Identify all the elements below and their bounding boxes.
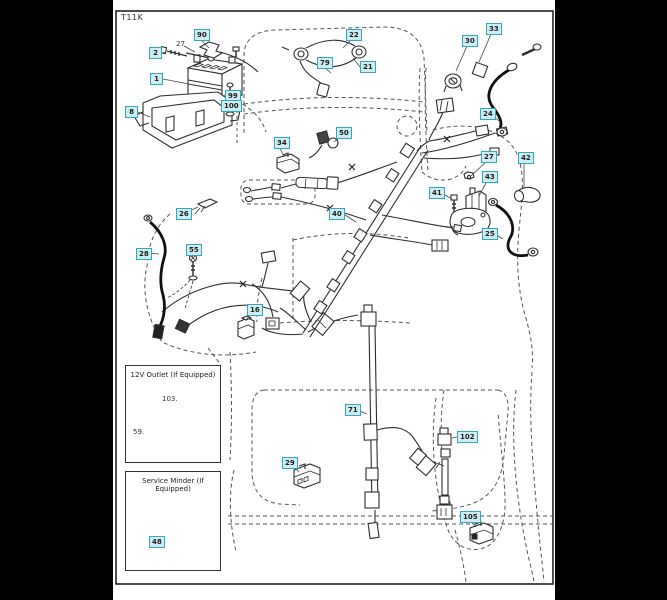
callout-34: 34 <box>274 137 290 149</box>
label-27: 27 <box>176 40 185 48</box>
callout-24: 24 <box>480 108 496 120</box>
callout-50: 50 <box>336 127 352 139</box>
inset-service-minder-title: Service Minder (If Equipped) <box>126 477 220 493</box>
callout-21: 21 <box>360 61 376 73</box>
callout-26: 26 <box>176 208 192 220</box>
callout-8: 8 <box>125 106 138 118</box>
label-59: 59. <box>133 428 144 436</box>
callout-102: 102 <box>457 431 478 443</box>
callout-40: 40 <box>329 208 345 220</box>
inset-12v-outlet: 12V Outlet (If Equipped) <box>125 365 221 463</box>
callout-29: 29 <box>282 457 298 469</box>
callout-55: 55 <box>186 244 202 256</box>
parts-diagram: 12V Outlet (If Equipped) Service Minder … <box>0 0 667 600</box>
callout-33: 33 <box>486 23 502 35</box>
callout-105: 105 <box>460 511 481 523</box>
label-103: 103. <box>162 395 178 403</box>
callout-100: 100 <box>221 100 242 112</box>
callout-2: 2 <box>149 47 162 59</box>
callout-43: 43 <box>482 171 498 183</box>
callout-25: 25 <box>482 228 498 240</box>
callout-41: 41 <box>429 187 445 199</box>
callout-42: 42 <box>518 152 534 164</box>
inset-12v-outlet-title: 12V Outlet (If Equipped) <box>126 371 220 379</box>
callout-30: 30 <box>462 35 478 47</box>
callout-71: 71 <box>345 404 361 416</box>
callout-28: 28 <box>136 248 152 260</box>
callout-1: 1 <box>150 73 163 85</box>
diagram-code: T11K <box>121 13 143 22</box>
callout-16: 16 <box>247 304 263 316</box>
callout-27: 27 <box>481 151 497 163</box>
callout-79: 79 <box>317 57 333 69</box>
callout-48: 48 <box>149 536 165 548</box>
callout-90: 90 <box>194 29 210 41</box>
inset-service-minder: Service Minder (If Equipped) <box>125 471 221 571</box>
callout-22: 22 <box>346 29 362 41</box>
